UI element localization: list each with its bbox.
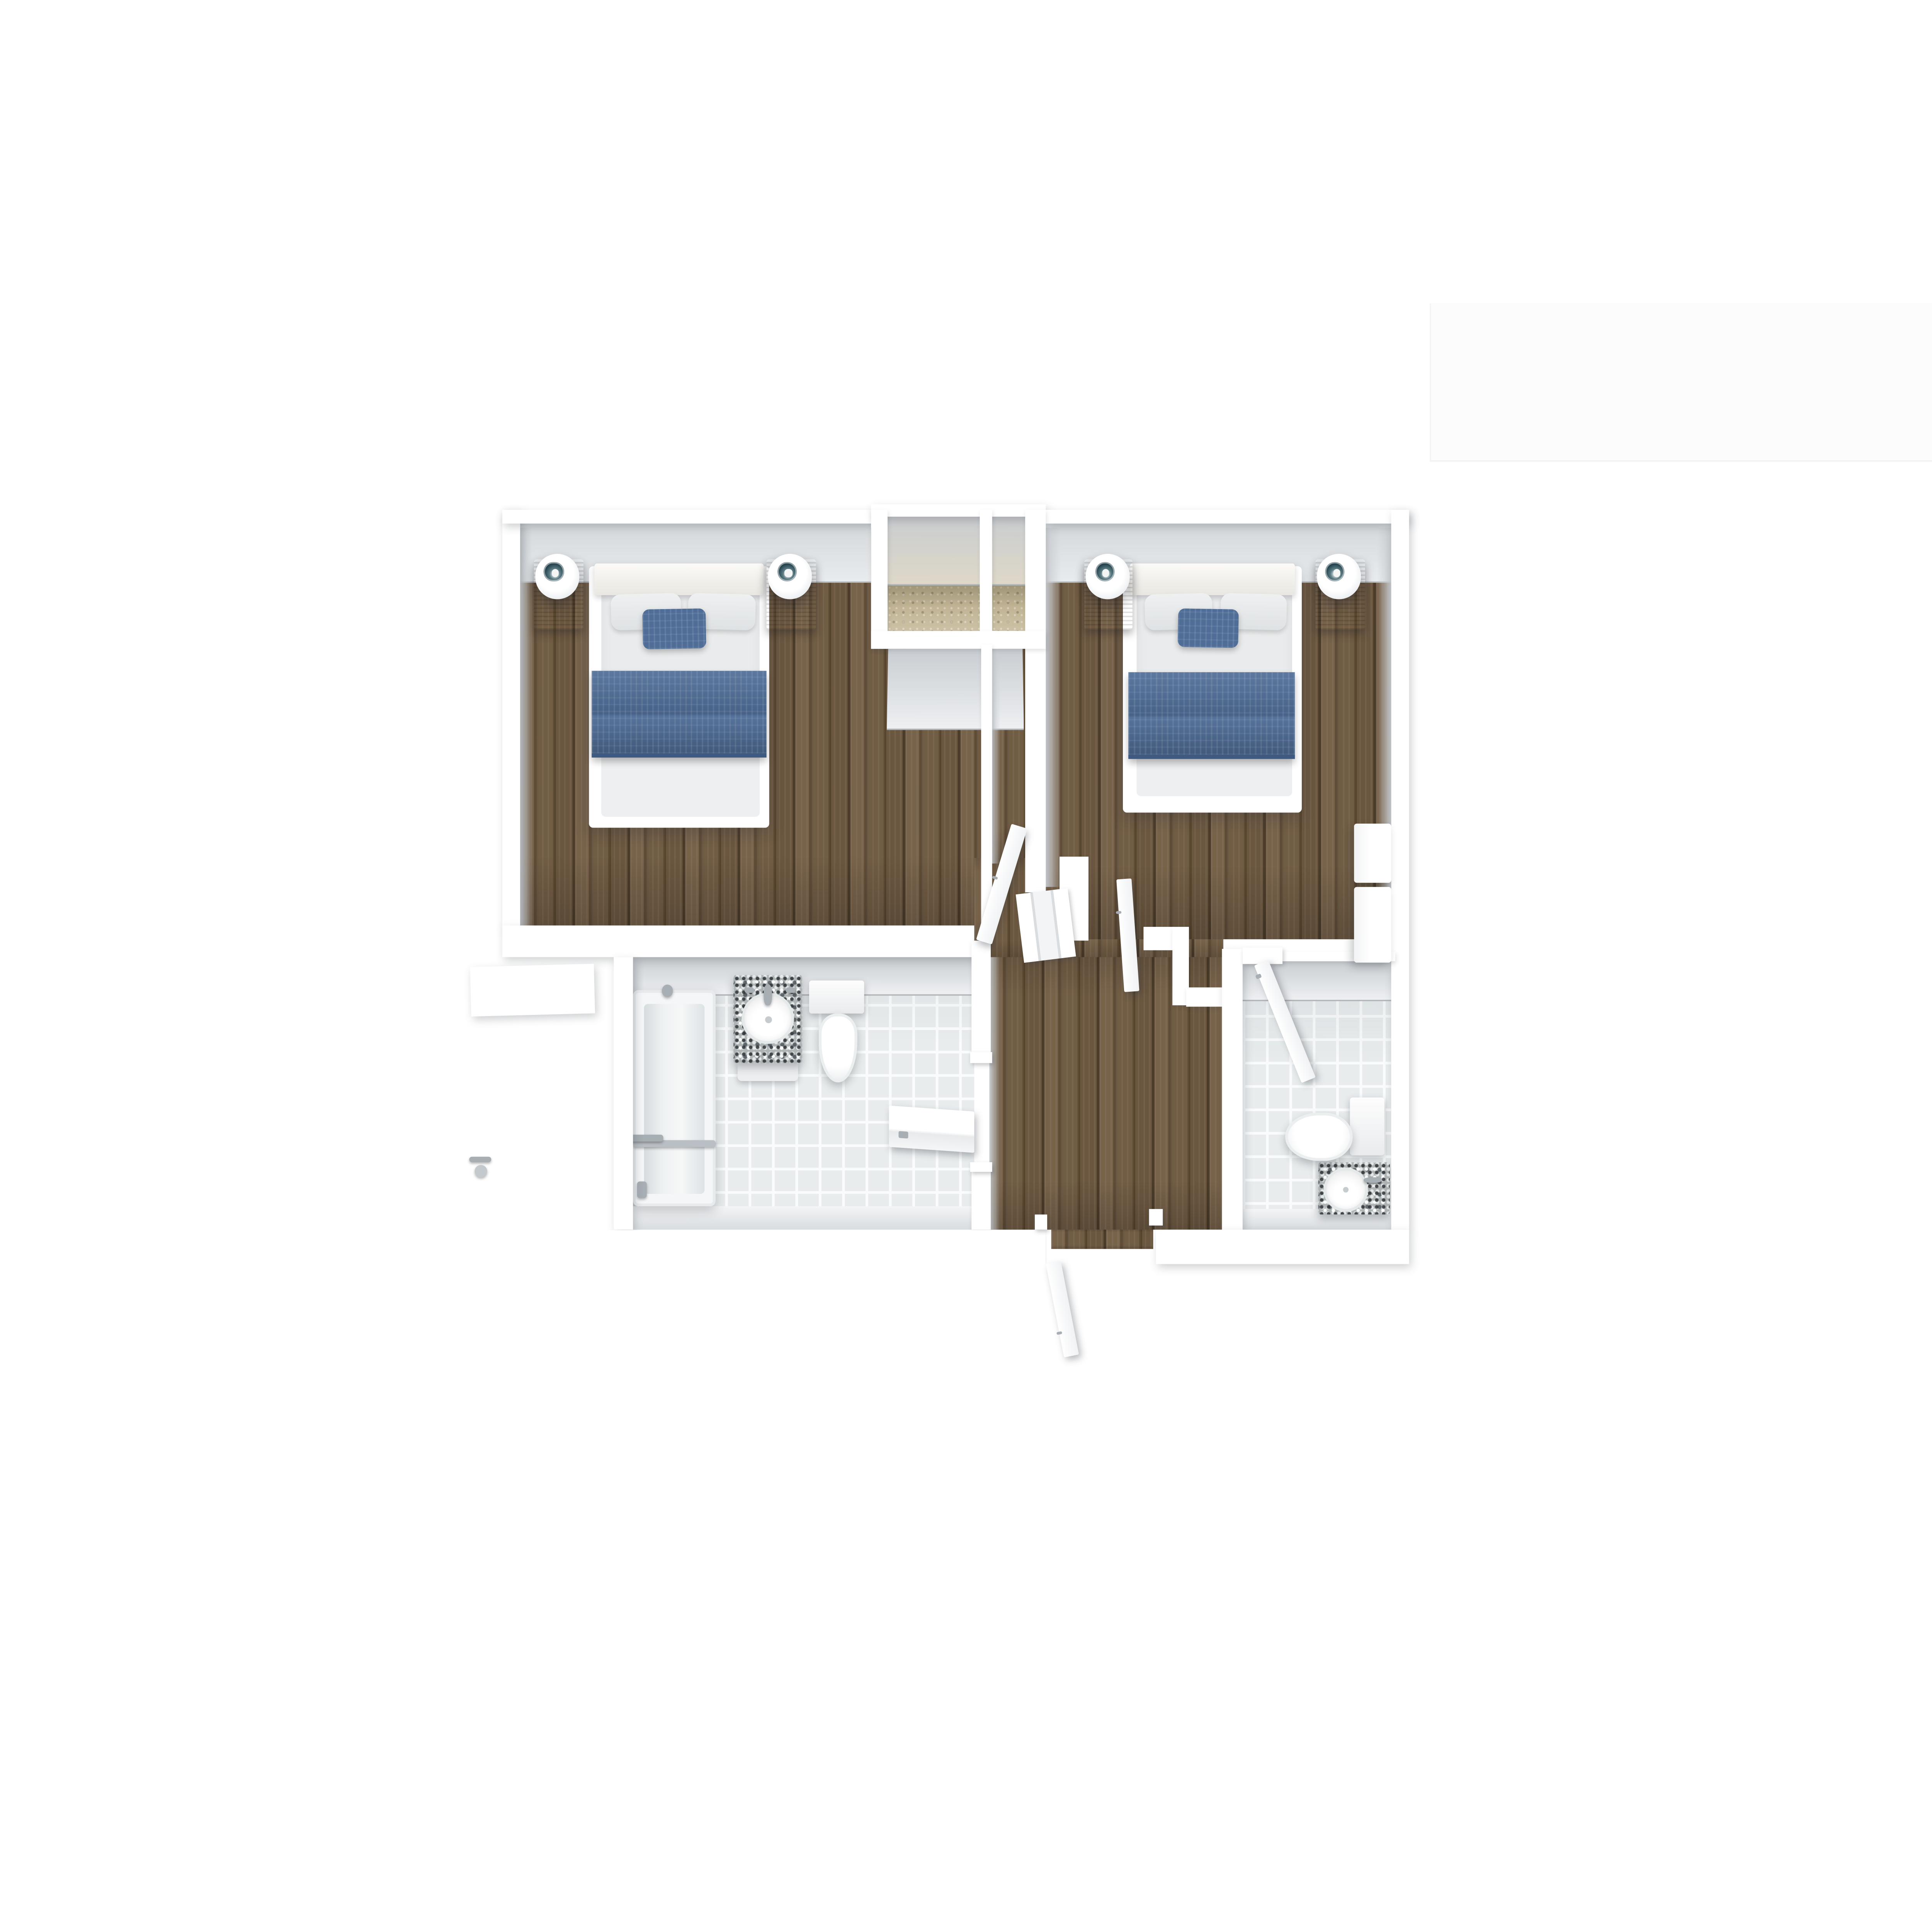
bed-left-lamp-left [535, 554, 580, 599]
wall-bathroom-right-west [1222, 949, 1243, 1230]
wall-top-left [502, 509, 874, 523]
stair-niche-right-back-face [990, 516, 1026, 586]
vanity-left-handle-right [786, 987, 796, 993]
entry-doorway-jamb-left [1034, 1214, 1047, 1230]
bathroom-left-doorway-jamb-top [970, 1053, 992, 1063]
tub-shower-valve [662, 984, 672, 997]
hall-neck-west-face [991, 644, 1000, 863]
wall-niche-south-band [871, 631, 1045, 649]
bathroom-left-door [889, 1106, 974, 1153]
wall-bedroom-left-south [502, 926, 975, 958]
wall-bathroom-right-north-west [1186, 987, 1224, 1006]
exterior-shower-head [474, 1165, 486, 1177]
bed-left-headboard [594, 563, 763, 595]
door-hinge [1056, 1331, 1061, 1335]
wall-east [1391, 509, 1408, 1230]
hallway-west-wall-face [989, 957, 1000, 1230]
bathroom-left-doorway-jamb-bottom [970, 1162, 992, 1172]
wall-bottom-right [1156, 1230, 1408, 1264]
wall-bathroom-left-east-lower [972, 1166, 990, 1230]
vanity-left-faucet [764, 984, 772, 1005]
door-handle [899, 1132, 907, 1138]
wall-bedroom-right-south-a [1144, 927, 1173, 950]
toilet-left-tank [810, 980, 864, 1013]
entry-doorway-jamb-right [1150, 1208, 1163, 1226]
bed-right-accent-pillow [1178, 608, 1239, 648]
stair-niche-right-carpet [990, 584, 1026, 631]
bed-left-accent-pillow [642, 608, 706, 650]
bedroom-right-west-wall-face [1045, 527, 1061, 888]
stair-niche-left-carpet [887, 584, 980, 631]
bed-left-runner [591, 671, 767, 757]
bed-right-lamp-left [1086, 554, 1130, 599]
lamp-bulb [785, 569, 792, 576]
vanity-right-faucet [1364, 1177, 1381, 1183]
wall-niche-middle [980, 509, 992, 645]
bedroom-left-west-wall-face [520, 527, 533, 929]
vanity-left-drain [765, 1016, 772, 1023]
bedroom-right-dresser-bottom [1354, 887, 1391, 962]
toilet-right-tank [1350, 1097, 1384, 1156]
wall-top-right [1045, 509, 1408, 523]
stair-niche-left-back-face [887, 516, 980, 586]
bed-left-foot-mattress [602, 754, 760, 816]
wall-exterior-stub-left [470, 964, 595, 1016]
lamp-bulb [552, 569, 559, 576]
wall-bathroom-left-west [614, 957, 633, 1230]
bathtub-basin [643, 1004, 705, 1193]
bedroom-right-dresser-top [1354, 823, 1391, 883]
bed-right-runner [1128, 672, 1295, 758]
wall-niche-left [871, 509, 888, 649]
wall-bathroom-left-east-upper [972, 941, 990, 1058]
vanity-left-drawer [737, 1063, 798, 1081]
bed-right-headboard [1130, 563, 1294, 595]
bed-left-lamp-right [768, 554, 812, 599]
niche-south-wall-face [887, 649, 1024, 730]
wall-niche-right-bedroom-west [1025, 509, 1046, 893]
bathroom-left-south-wall-face [632, 1205, 974, 1230]
hall-door-frame [1016, 889, 1077, 963]
background-sheet-artifact [1430, 303, 1932, 461]
floorplan-stage [0, 276, 1932, 1641]
wall-bedroom-left-west [502, 509, 520, 929]
vanity-left-handle-left [745, 987, 754, 993]
tub-faucet [638, 1181, 647, 1197]
vanity-right-drain [1343, 1187, 1349, 1193]
toilet-right-bowl [1285, 1113, 1352, 1161]
bed-right-lamp-right [1316, 554, 1361, 599]
bathroom-left-north-wall-face [632, 957, 974, 995]
entry-door [1045, 1262, 1078, 1358]
lamp-bulb [1333, 569, 1340, 576]
bed-right-foot-mattress [1137, 755, 1291, 796]
exterior-shower-fixture-bar [469, 1156, 491, 1163]
wall-top-over-niche [871, 504, 1046, 516]
wall-bottom-left [586, 1230, 1046, 1264]
entry-threshold-wood [1051, 1230, 1153, 1249]
page-background [0, 0, 1932, 1917]
